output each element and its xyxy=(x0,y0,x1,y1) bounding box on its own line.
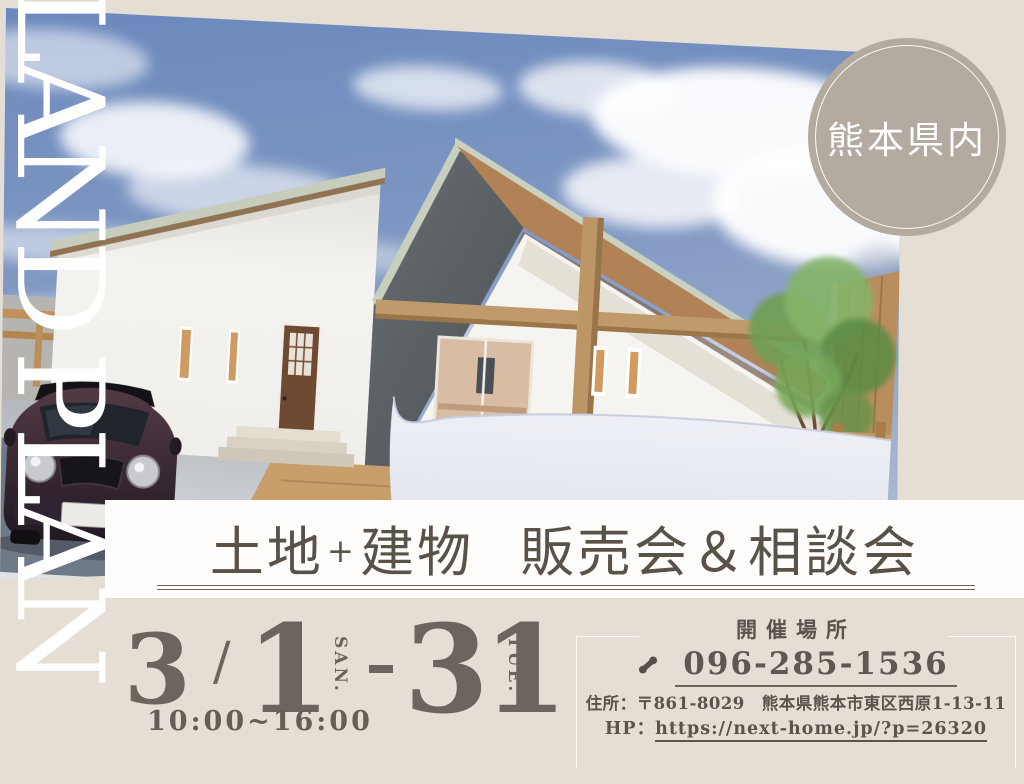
prefecture-badge-label: 熊本県内 xyxy=(827,110,987,164)
date-range-dash xyxy=(369,665,393,673)
opening-hours: 10:00~16:00 xyxy=(147,706,373,737)
website-line: HP：https://next-home.jp/?p=26320 xyxy=(577,715,1015,740)
start-weekday: SAN. xyxy=(330,636,350,694)
address-label: 住所： xyxy=(586,694,637,713)
phone-icon xyxy=(635,652,661,682)
address-line: 住所：〒861-8029 熊本県熊本市東区西原1-13-11 xyxy=(577,690,1015,714)
phone-number[interactable]: 096-285-1536 xyxy=(675,646,956,687)
prefecture-badge: 熊本県内 xyxy=(808,38,1006,236)
end-day: 31 xyxy=(404,608,562,730)
plus-sign: + xyxy=(327,532,357,570)
date-slash: / xyxy=(213,636,231,688)
hp-label: HP： xyxy=(605,719,655,739)
land-plan-vertical-banner: LAND PLAN xyxy=(0,0,120,784)
end-weekday: TUE. xyxy=(504,636,524,694)
venue-heading: 開催場所 xyxy=(577,614,1015,644)
venue-panel: 開催場所 096-285-1536 住所：〒861-8029 熊本県熊本市東区西… xyxy=(576,636,1016,768)
website-url[interactable]: https://next-home.jp/?p=26320 xyxy=(655,719,987,742)
address-value: 〒861-8029 熊本県熊本市東区西原1-13-11 xyxy=(637,694,1007,713)
title-band: 土地+建物販売会＆相談会 xyxy=(105,500,1024,598)
event-title: 土地+建物販売会＆相談会 xyxy=(105,508,1024,587)
title-double-underline xyxy=(157,585,975,590)
month-number: 3 xyxy=(124,622,191,718)
